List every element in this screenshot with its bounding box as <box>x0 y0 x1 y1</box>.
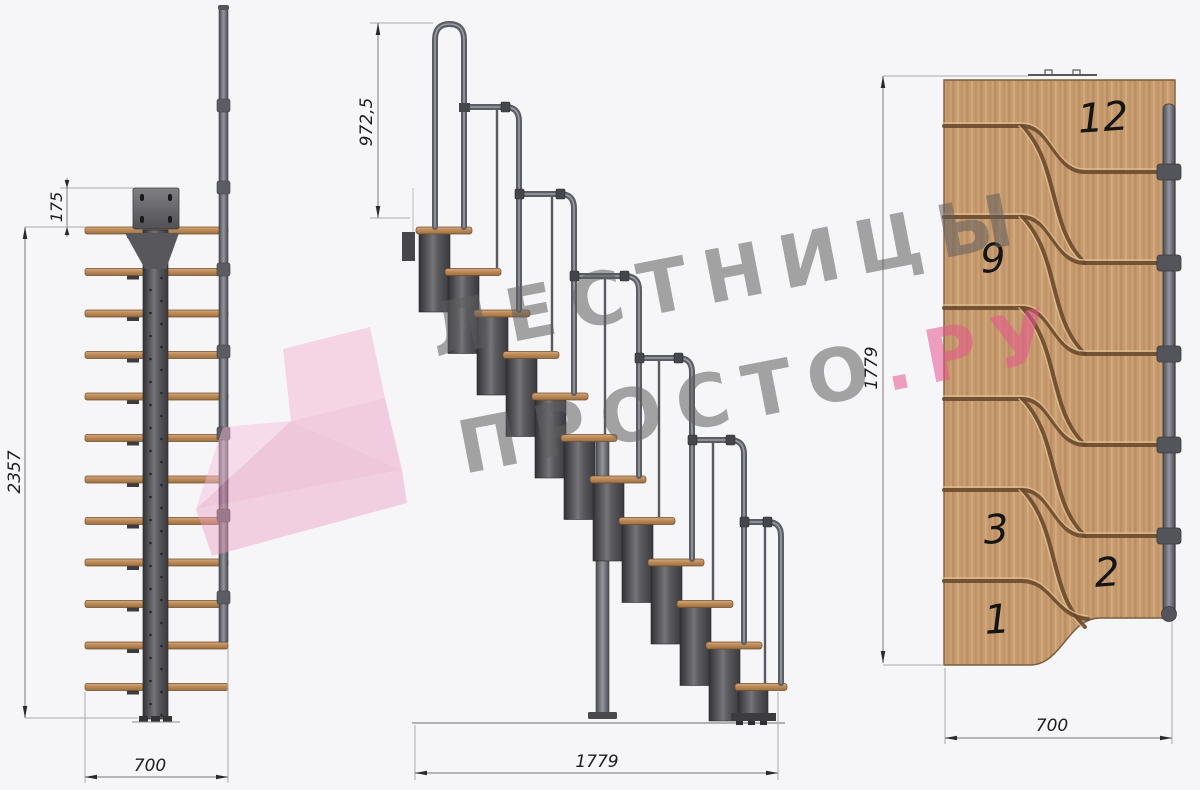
dimension-plan-length: 1779 <box>862 346 882 389</box>
side-pole-flange <box>588 712 617 719</box>
bolt <box>160 300 163 303</box>
bolt <box>149 335 152 338</box>
front-wall-plate <box>133 188 179 229</box>
front-base-feet <box>132 716 180 722</box>
pole-sleeve <box>217 509 230 522</box>
side-wall-bracket <box>402 232 415 261</box>
bolt <box>160 277 163 280</box>
bolt <box>149 496 152 499</box>
dimension-front-height: 2357 <box>5 450 25 493</box>
bolt <box>160 668 163 671</box>
side-dim-972-5: 972,5 <box>357 23 433 218</box>
handrail-pipe-highlight <box>435 24 464 227</box>
step-module <box>738 689 768 714</box>
dimension-front-width: 700 <box>134 756 166 776</box>
bolt <box>160 553 163 556</box>
front-pole-cap <box>218 5 229 10</box>
side-tread <box>532 393 588 400</box>
rail-collar <box>570 271 579 281</box>
step-number-9: 9 <box>979 235 1008 283</box>
bolt <box>149 657 152 660</box>
bolt <box>160 461 163 464</box>
handrail-knob <box>1157 437 1181 453</box>
bolt <box>149 358 152 361</box>
bolt <box>149 519 152 522</box>
technical-drawing-canvas: 175 2357 700 <box>0 0 1200 790</box>
front-column-funnel <box>125 233 179 269</box>
rail-collar <box>726 435 735 445</box>
step-number-12: 12 <box>1076 93 1130 142</box>
rail-collar <box>740 517 749 527</box>
rail-collar <box>501 102 510 112</box>
bolt <box>160 645 163 648</box>
bolt <box>149 565 152 568</box>
side-tread <box>445 269 501 276</box>
side-tread <box>561 435 617 442</box>
bolt <box>149 542 152 545</box>
bolt <box>160 714 163 717</box>
bolt <box>160 346 163 349</box>
dimension-front-offset: 175 <box>47 192 66 223</box>
side-elevation-view: 972,5 1779 <box>357 23 787 780</box>
bolt <box>149 289 152 292</box>
bolt <box>149 312 152 315</box>
tread-bracket <box>127 649 139 653</box>
front-elevation-view: 175 2357 700 <box>5 5 413 783</box>
pole-sleeve <box>217 181 230 194</box>
dimension-side-length: 1779 <box>575 752 618 772</box>
plan-view: 12 9 3 2 1 1779 700 <box>862 70 1181 744</box>
bolt <box>149 634 152 637</box>
tread-bracket <box>127 317 139 321</box>
bolt <box>160 438 163 441</box>
dimension-plan-width: 700 <box>1036 716 1068 736</box>
rail-collar <box>635 353 644 363</box>
tread-bracket <box>127 608 139 612</box>
side-tread <box>503 352 559 359</box>
tread-bracket <box>127 442 139 446</box>
tread-bracket <box>127 359 139 363</box>
staircase-drawing: 175 2357 700 <box>0 0 1200 790</box>
tread-bracket <box>127 566 139 570</box>
rail-collar <box>620 271 629 281</box>
bolt <box>149 680 152 683</box>
bolt <box>160 507 163 510</box>
pole-sleeve <box>217 427 230 440</box>
plan-wall-tab <box>1028 70 1097 75</box>
pole-sleeve <box>217 591 230 604</box>
rail-collar <box>515 189 524 199</box>
side-base-plate <box>731 713 776 721</box>
rail-collar <box>556 189 565 199</box>
handrail-pipe-highlight <box>744 522 781 683</box>
front-central-column <box>143 230 168 719</box>
bolt <box>160 415 163 418</box>
step-number-1: 1 <box>983 596 1012 644</box>
step-number-2: 2 <box>1093 549 1122 597</box>
handrail-knob <box>1157 346 1181 362</box>
bolt <box>160 691 163 694</box>
dimension-side-handrail-height: 972,5 <box>357 98 377 147</box>
rail-collar <box>674 353 683 363</box>
pole-sleeve <box>217 345 230 358</box>
handrail-knob <box>1157 164 1181 180</box>
bolt <box>160 599 163 602</box>
pole-sleeve <box>217 263 230 276</box>
side-tread <box>619 518 675 525</box>
bolt <box>149 588 152 591</box>
side-tread <box>677 601 733 608</box>
bolt <box>149 404 152 407</box>
step-number-3: 3 <box>982 506 1011 554</box>
pole-sleeve <box>217 99 230 112</box>
bolt <box>149 473 152 476</box>
rail-bracket <box>459 103 470 112</box>
bolt <box>149 703 152 706</box>
handrail-pipe <box>744 522 781 683</box>
bolt <box>160 484 163 487</box>
tread-bracket <box>127 483 139 487</box>
side-base-feet <box>736 721 767 725</box>
bolt <box>160 530 163 533</box>
tread-bracket <box>127 276 139 280</box>
bolt <box>160 392 163 395</box>
side-tread <box>706 642 762 649</box>
handrail-knob <box>1157 528 1181 544</box>
side-tread <box>648 559 704 566</box>
plan-handrail-end-ball <box>1162 607 1177 622</box>
rail-collar <box>688 435 697 445</box>
bolt <box>160 369 163 372</box>
bolt <box>160 576 163 579</box>
bolt <box>160 323 163 326</box>
bolt <box>149 611 152 614</box>
tread-bracket <box>127 525 139 529</box>
bolt <box>149 381 152 384</box>
handrail-knob <box>1157 255 1181 271</box>
handrail-pipe <box>435 24 464 227</box>
bolt <box>149 427 152 430</box>
rail-collar <box>763 517 772 527</box>
bolt <box>160 622 163 625</box>
bolt <box>149 450 152 453</box>
tread-bracket <box>127 400 139 404</box>
tread-bracket <box>127 691 139 695</box>
